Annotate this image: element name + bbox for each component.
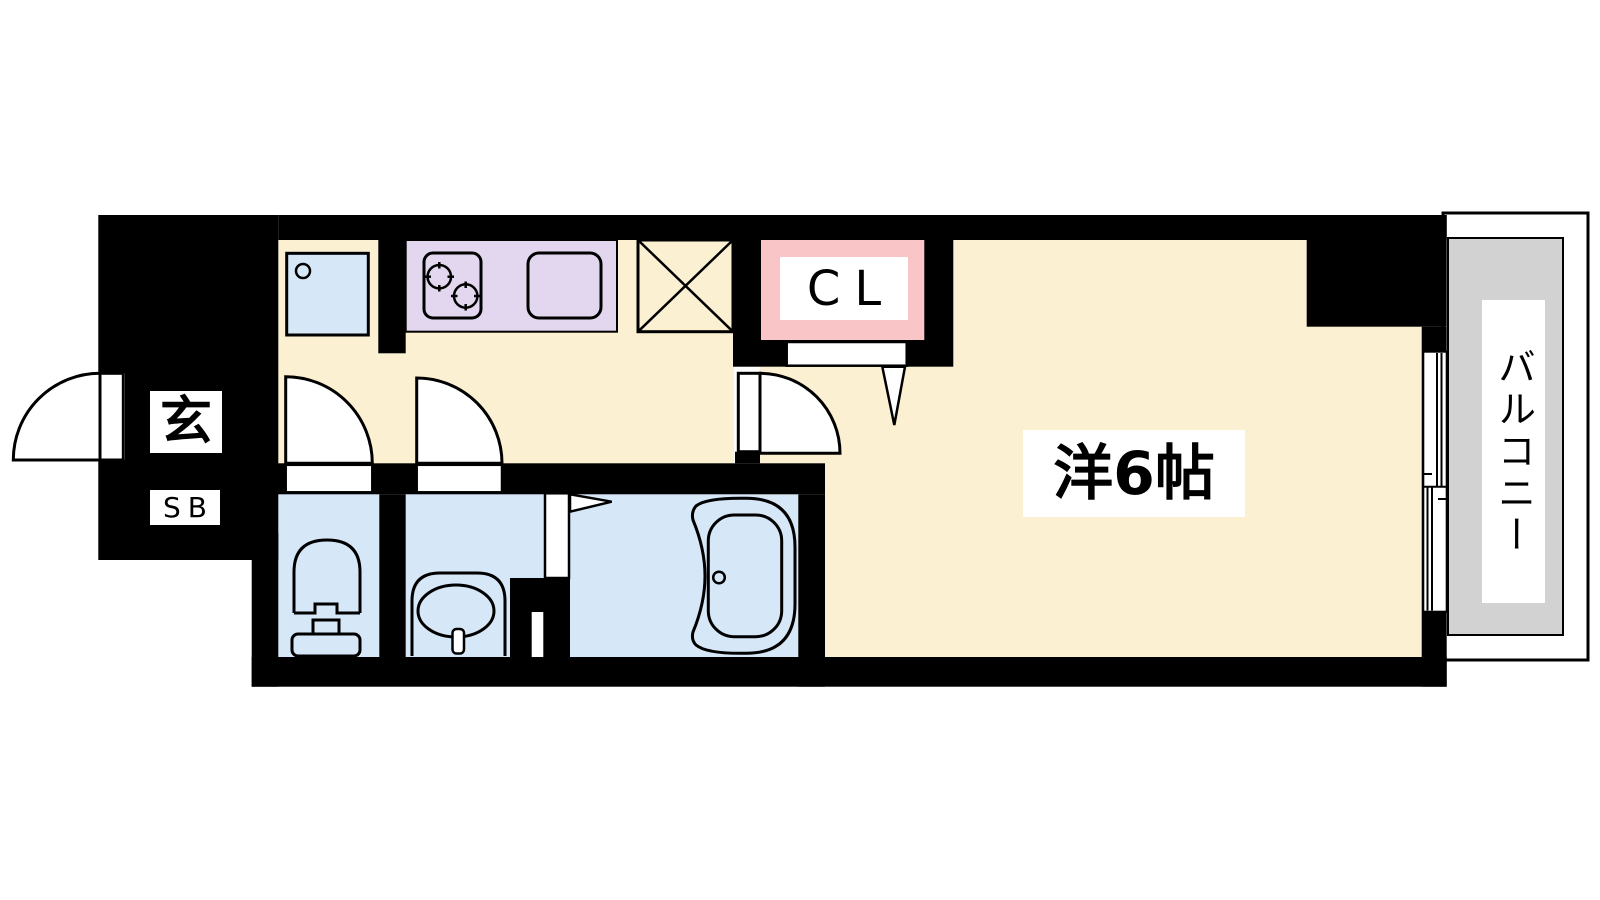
entrance-door	[13, 373, 125, 460]
refrigerator-space-icon	[638, 240, 733, 332]
closet-door	[787, 342, 907, 366]
main-room-label: 洋6帖	[1023, 430, 1245, 517]
kitchen-counter	[406, 240, 617, 332]
entrance-door-leaf	[100, 373, 123, 460]
sliding-window-icon	[1423, 352, 1446, 612]
washing-machine-pan-icon	[287, 253, 369, 335]
kitchen-floor	[617, 240, 638, 332]
shoe-box-label: SB	[150, 490, 220, 525]
entrance-label: 玄	[150, 391, 222, 453]
floorplan-stage: 玄 SB CL 洋6帖 バルコニー	[0, 0, 1600, 900]
wall-slot	[532, 612, 544, 657]
closet-label: CL	[780, 257, 908, 320]
bathroom-floor	[568, 494, 798, 657]
balcony-label: バルコニー	[1482, 300, 1545, 603]
entrance-door-swing-icon	[13, 373, 100, 460]
floorplan-drawing	[0, 0, 1600, 900]
room-door-leaf	[738, 373, 760, 451]
kitchen-floor	[406, 332, 734, 368]
